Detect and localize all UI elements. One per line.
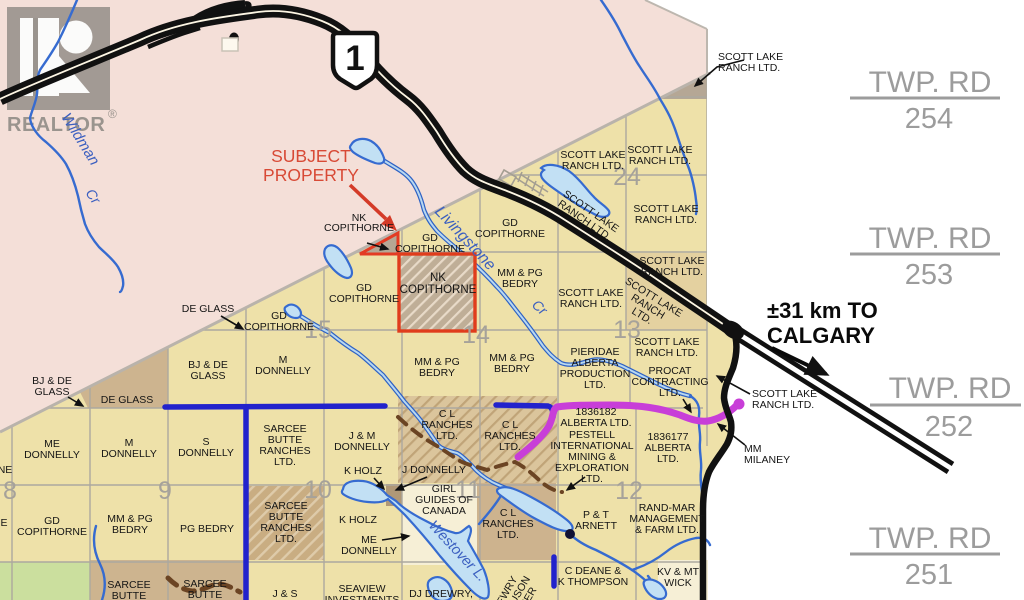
svg-text:LTD.: LTD. bbox=[581, 473, 603, 485]
svg-text:DONNELLY: DONNELLY bbox=[341, 545, 397, 557]
svg-text:252: 252 bbox=[925, 411, 973, 443]
svg-text:COPITHORNE: COPITHORNE bbox=[400, 284, 477, 296]
svg-text:RANCH LTD.: RANCH LTD. bbox=[636, 347, 698, 359]
svg-text:NK: NK bbox=[430, 272, 446, 284]
svg-text:J DONNELLY: J DONNELLY bbox=[402, 464, 466, 476]
svg-text:COPITHORNE: COPITHORNE bbox=[475, 228, 545, 240]
svg-text:LTD.: LTD. bbox=[657, 453, 679, 465]
svg-text:TWP. RD: TWP. RD bbox=[869, 222, 992, 255]
svg-text:DJ DREWRY,: DJ DREWRY, bbox=[409, 588, 473, 600]
svg-text:253: 253 bbox=[905, 259, 953, 291]
svg-text:GLASS: GLASS bbox=[34, 386, 69, 398]
svg-text:COPITHORNE: COPITHORNE bbox=[324, 222, 394, 234]
svg-text:LTD.: LTD. bbox=[497, 529, 519, 541]
svg-text:J & S: J & S bbox=[272, 588, 297, 600]
svg-text:LTD.: LTD. bbox=[436, 430, 458, 442]
svg-text:RANCH LTD.: RANCH LTD. bbox=[752, 399, 814, 411]
svg-text:LTD.: LTD. bbox=[659, 387, 681, 399]
svg-text:ARNETT: ARNETT bbox=[575, 520, 618, 532]
svg-text:SUBJECT: SUBJECT bbox=[271, 146, 351, 166]
svg-text:COPITHORNE: COPITHORNE bbox=[244, 321, 314, 333]
svg-text:DE GLASS: DE GLASS bbox=[101, 394, 154, 406]
svg-text:8: 8 bbox=[3, 477, 17, 505]
svg-text:RANCH LTD.: RANCH LTD. bbox=[562, 160, 624, 172]
svg-text:RANCH LTD.: RANCH LTD. bbox=[635, 214, 697, 226]
svg-text:DONNELLY: DONNELLY bbox=[334, 441, 390, 453]
svg-text:12: 12 bbox=[615, 477, 643, 505]
svg-text:LTD.: LTD. bbox=[499, 441, 521, 453]
svg-text:CANADA: CANADA bbox=[422, 505, 466, 517]
svg-text:LTD.: LTD. bbox=[275, 533, 297, 545]
svg-text:GLASS: GLASS bbox=[190, 370, 225, 382]
svg-text:PG BEDRY: PG BEDRY bbox=[180, 523, 234, 535]
svg-text:K HOLZ: K HOLZ bbox=[344, 465, 383, 477]
svg-text:TWP. RD: TWP. RD bbox=[869, 66, 992, 99]
svg-text:14: 14 bbox=[462, 321, 490, 349]
svg-text:WICK: WICK bbox=[664, 577, 691, 589]
svg-text:10: 10 bbox=[304, 476, 332, 504]
svg-text:K HOLZ: K HOLZ bbox=[339, 514, 378, 526]
svg-text:E: E bbox=[0, 517, 7, 529]
svg-text:LTD.: LTD. bbox=[584, 379, 606, 391]
svg-text:9: 9 bbox=[158, 477, 172, 505]
svg-text:®: ® bbox=[108, 107, 117, 121]
svg-text:RANCH LTD.: RANCH LTD. bbox=[629, 155, 691, 167]
svg-text:1: 1 bbox=[345, 39, 364, 78]
svg-text:COPITHORNE: COPITHORNE bbox=[395, 243, 465, 255]
svg-text:BEDRY: BEDRY bbox=[419, 367, 455, 379]
svg-text:DE GLASS: DE GLASS bbox=[182, 303, 235, 315]
svg-text:BEDRY: BEDRY bbox=[112, 524, 148, 536]
svg-text:DONNELLY: DONNELLY bbox=[101, 448, 157, 460]
svg-text:REALTOR: REALTOR bbox=[7, 114, 105, 136]
svg-text:COPITHORNE: COPITHORNE bbox=[17, 526, 87, 538]
svg-text:DONNELLY: DONNELLY bbox=[178, 447, 234, 459]
svg-text:BEDRY: BEDRY bbox=[494, 363, 530, 375]
svg-text:ALBERTA LTD.: ALBERTA LTD. bbox=[560, 417, 631, 429]
svg-text:BEDRY: BEDRY bbox=[502, 278, 538, 290]
svg-text:TWP. RD: TWP. RD bbox=[869, 522, 992, 555]
svg-text:COPITHORNE: COPITHORNE bbox=[329, 293, 399, 305]
svg-text:LTD.: LTD. bbox=[274, 456, 296, 468]
svg-text:PROPERTY: PROPERTY bbox=[263, 165, 359, 185]
svg-text:DONNELLY: DONNELLY bbox=[255, 365, 311, 377]
svg-text:CALGARY: CALGARY bbox=[767, 323, 875, 348]
svg-text:DONNELLY: DONNELLY bbox=[24, 449, 80, 461]
svg-text:INVESTMENTS: INVESTMENTS bbox=[325, 594, 400, 600]
svg-text:254: 254 bbox=[905, 103, 953, 135]
svg-text:RANCH LTD.: RANCH LTD. bbox=[641, 266, 703, 278]
svg-text:MILANEY: MILANEY bbox=[744, 454, 790, 466]
svg-text:NE: NE bbox=[0, 464, 12, 476]
svg-text:RANCH LTD.: RANCH LTD. bbox=[718, 62, 780, 74]
svg-text:& FARM LTD.: & FARM LTD. bbox=[635, 524, 699, 536]
svg-text:K THOMPSON: K THOMPSON bbox=[558, 576, 628, 588]
svg-text:BUTTE: BUTTE bbox=[188, 589, 222, 600]
svg-text:RANCH LTD.: RANCH LTD. bbox=[560, 298, 622, 310]
svg-text:TWP. RD: TWP. RD bbox=[889, 372, 1012, 405]
svg-text:BUTTE: BUTTE bbox=[112, 590, 146, 600]
svg-text:251: 251 bbox=[905, 559, 953, 591]
svg-text:±31 km TO: ±31 km TO bbox=[767, 298, 878, 323]
